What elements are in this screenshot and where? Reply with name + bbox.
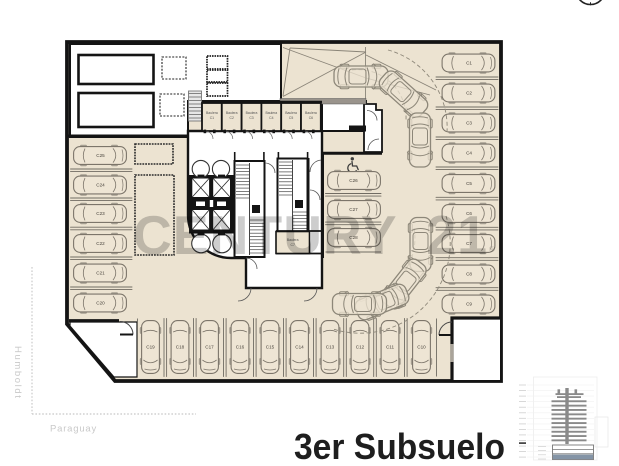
svg-text:C13: C13 [326,345,335,350]
svg-text:C5: C5 [466,181,472,186]
svg-text:C3: C3 [466,121,472,126]
svg-text:C11: C11 [386,345,395,350]
svg-text:C9: C9 [466,302,472,307]
svg-text:C17: C17 [205,345,214,350]
svg-text:C12: C12 [356,345,365,350]
svg-text:C5: C5 [289,116,293,120]
svg-text:C21: C21 [96,271,105,276]
svg-text:C10: C10 [417,345,426,350]
svg-text:Baulera: Baulera [265,111,277,115]
svg-text:C4: C4 [269,116,273,120]
svg-text:Baulera: Baulera [305,111,317,115]
svg-text:Baulera: Baulera [226,111,238,115]
svg-text:C8: C8 [466,272,472,277]
svg-text:C16: C16 [236,345,245,350]
svg-text:C4: C4 [466,151,472,156]
svg-text:C20: C20 [96,301,105,306]
svg-text:C2: C2 [230,116,234,120]
svg-text:C19: C19 [146,345,155,350]
svg-text:C2: C2 [466,91,472,96]
svg-text:Paraguay: Paraguay [50,424,97,435]
svg-text:Baulera: Baulera [246,111,258,115]
svg-text:Humboldt: Humboldt [12,346,23,399]
svg-text:Baulera: Baulera [285,111,297,115]
svg-text:C23: C23 [96,211,105,216]
svg-text:C25: C25 [96,153,105,158]
svg-text:C18: C18 [176,345,185,350]
svg-text:C24: C24 [96,183,105,188]
svg-text:C26: C26 [349,178,358,183]
svg-text:C22: C22 [96,241,105,246]
svg-text:®: ® [489,245,495,254]
svg-text:3er Subsuelo: 3er Subsuelo [294,426,505,466]
svg-text:C14: C14 [295,345,304,350]
svg-text:C15: C15 [266,345,275,350]
svg-text:C1: C1 [210,116,214,120]
svg-text:CENTURY 21: CENTURY 21 [133,204,488,266]
svg-text:C6: C6 [309,116,313,120]
svg-text:C3: C3 [249,116,253,120]
svg-text:C1: C1 [466,61,472,66]
svg-text:Baulera: Baulera [206,111,218,115]
